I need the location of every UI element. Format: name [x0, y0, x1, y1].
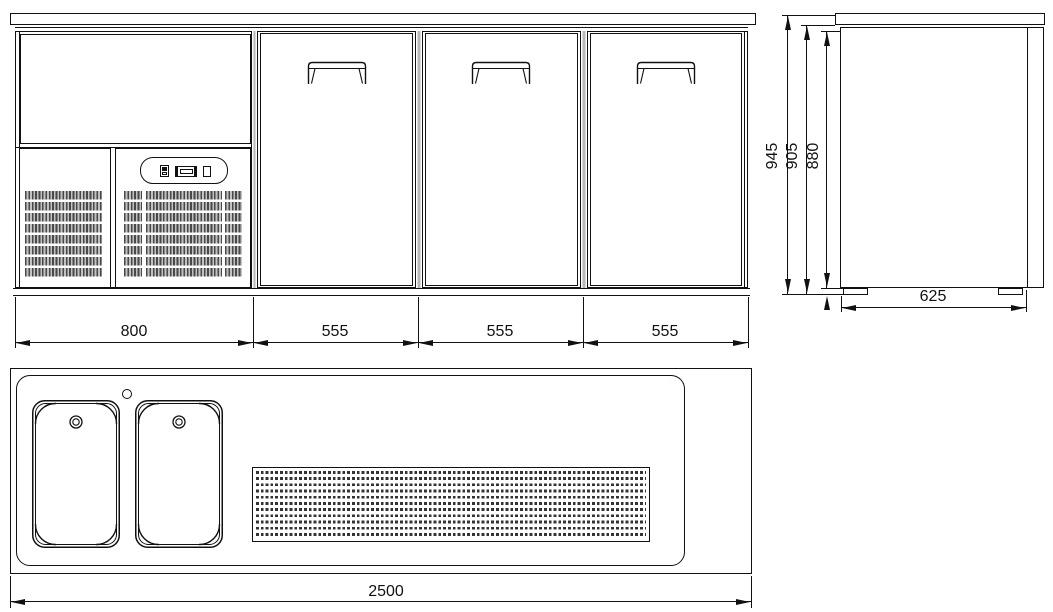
dimension-555-label-3: 555 — [635, 324, 695, 340]
ventilation-grille-right-b — [146, 191, 222, 279]
ext-line — [751, 576, 752, 608]
arrowhead — [804, 26, 810, 40]
drainer-grille-perforation — [256, 471, 646, 538]
upper-blank-panel — [20, 34, 251, 144]
sink-bowl-1 — [32, 400, 120, 548]
mullion-3 — [580, 31, 588, 288]
mullion-2 — [415, 31, 423, 288]
dim-line-2500 — [10, 601, 752, 602]
foot-rear — [998, 288, 1023, 295]
door-handle-1 — [306, 53, 368, 85]
arrowhead — [785, 16, 791, 30]
foot-front — [843, 288, 868, 295]
power-switch-lower — [162, 172, 167, 176]
dim-line-625 — [841, 307, 1026, 308]
dim-line-880 — [826, 31, 827, 288]
arrowhead — [1011, 305, 1025, 311]
sink-bowl-2 — [135, 400, 223, 548]
dimension-945-label: 945 — [765, 136, 781, 176]
power-switch-rocker — [162, 167, 167, 171]
ventilation-grille-right-a — [124, 191, 142, 279]
arrowhead — [16, 340, 30, 346]
arrowhead — [568, 340, 582, 346]
arrowhead — [804, 279, 810, 293]
arrowhead — [403, 340, 417, 346]
dimension-2500-label: 2500 — [346, 584, 426, 600]
ext-line — [782, 15, 835, 16]
arrowhead — [824, 273, 830, 287]
worktop-side — [835, 13, 1045, 25]
worktop-front — [10, 13, 756, 25]
mullion-1 — [251, 31, 258, 288]
ext-line — [782, 294, 843, 295]
dimension-555-label-1: 555 — [305, 324, 365, 340]
arrowhead-outside — [824, 296, 830, 310]
ext-line — [821, 288, 843, 289]
ext-line — [821, 31, 840, 32]
ventilation-grille-right-c — [225, 191, 242, 279]
thermostat-display-window — [180, 169, 194, 175]
arrowhead — [736, 599, 750, 605]
arrowhead — [733, 340, 747, 346]
dimension-line-front — [15, 342, 748, 343]
top-rail-line-1 — [15, 27, 748, 28]
dimension-905-label: 905 — [785, 136, 801, 176]
arrowhead — [785, 279, 791, 293]
power-switch — [160, 165, 169, 177]
door-handle-2 — [470, 53, 532, 85]
dimension-880-label: 880 — [806, 136, 822, 176]
tap-hole — [122, 389, 132, 399]
dimension-800-label: 800 — [104, 324, 164, 340]
technical-drawing-canvas: 800 555 555 555 945 905 880 — [0, 0, 1053, 612]
ext-line — [748, 297, 749, 348]
cabinet-body-side — [840, 27, 1028, 288]
dimension-555-label-2: 555 — [470, 324, 530, 340]
arrowhead — [824, 32, 830, 46]
ventilation-grille-left — [25, 191, 102, 279]
ext-line — [801, 25, 835, 26]
light-switch — [203, 166, 211, 178]
door-handle-3 — [635, 53, 697, 85]
rear-panel-side — [1027, 27, 1044, 288]
drainer-grille — [252, 467, 650, 542]
arrowhead — [419, 340, 433, 346]
arrowhead — [842, 305, 856, 311]
drain-hole-1 — [70, 416, 82, 428]
ext-line — [1026, 290, 1027, 312]
dimension-625-label: 625 — [903, 289, 963, 305]
arrowhead — [584, 340, 598, 346]
body-right-inner-edge — [744, 31, 745, 288]
arrowhead — [11, 599, 25, 605]
drain-hole-2 — [173, 416, 185, 428]
arrowhead — [238, 340, 252, 346]
arrowhead — [254, 340, 268, 346]
plinth-front — [13, 288, 750, 296]
